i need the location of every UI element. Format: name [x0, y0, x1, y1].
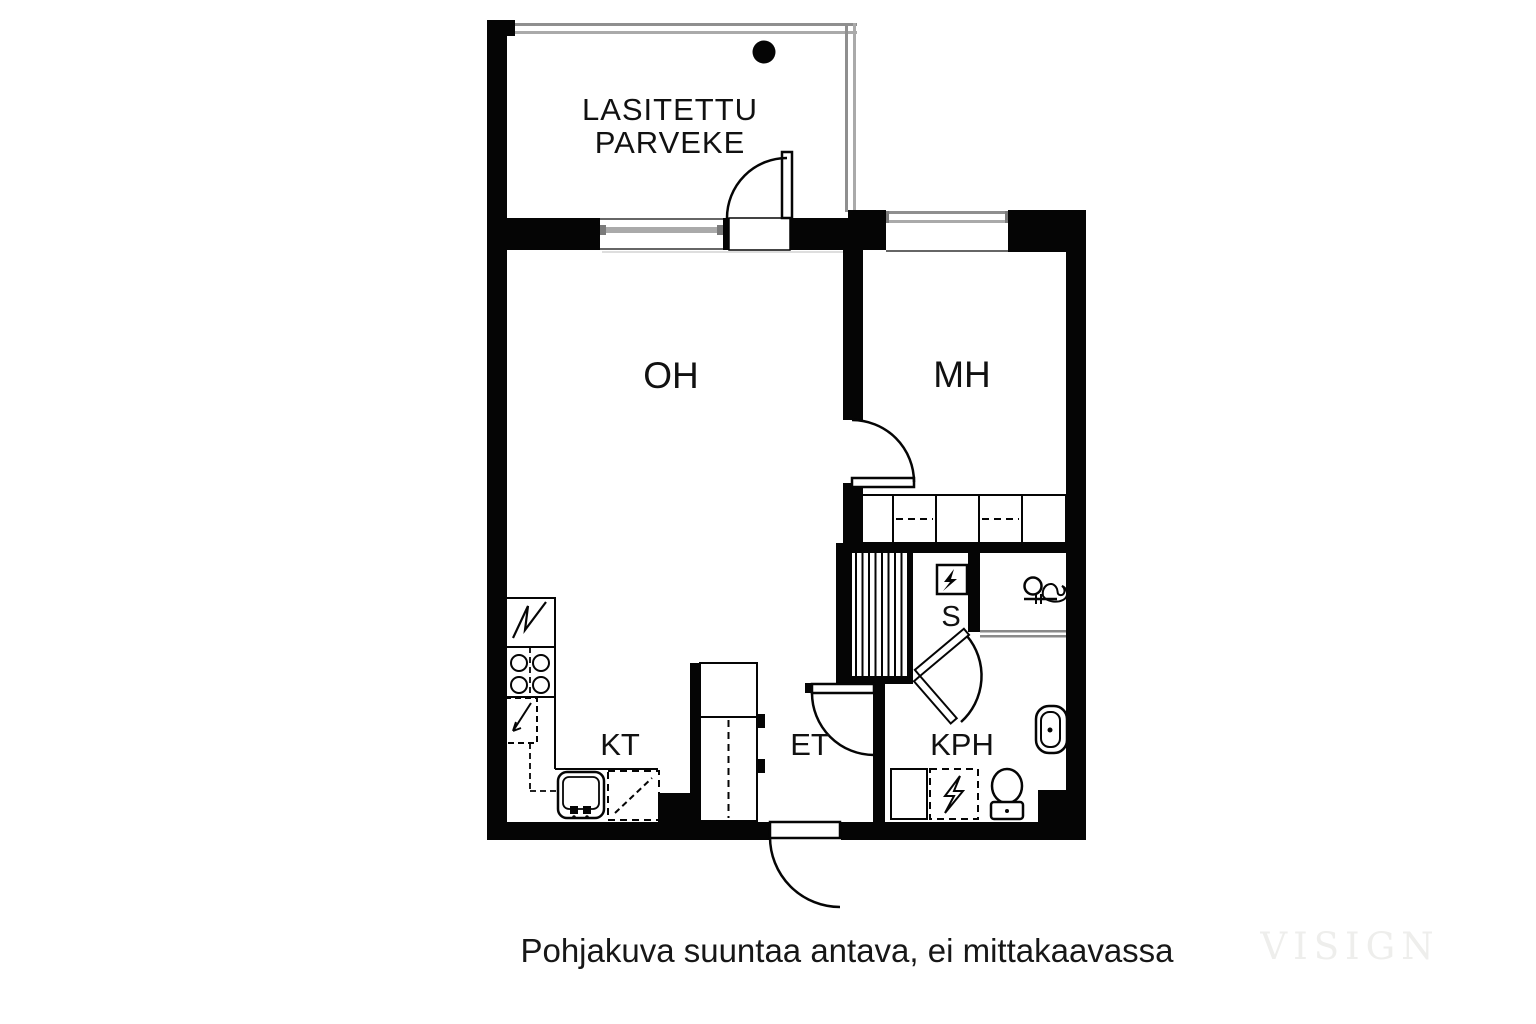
wall-left	[487, 218, 507, 840]
sauna-bench-slats	[856, 553, 913, 676]
window-bedroom	[886, 210, 1008, 252]
cabinet-right-tab-lower	[757, 759, 765, 773]
front-door-leaf	[770, 822, 840, 838]
room-label-bedroom: MH	[933, 354, 991, 395]
wall-balcony-left	[487, 20, 507, 220]
front-door-jamb-right	[841, 822, 848, 840]
wall-sauna-left	[836, 553, 852, 684]
fridge-icon	[505, 598, 555, 647]
washbasin	[1036, 706, 1067, 753]
room-label-bathroom: KPH	[930, 727, 994, 762]
wall-mh-sauna	[836, 543, 1086, 553]
exterior-walls	[487, 20, 1086, 840]
sauna-door-leaf-open	[915, 629, 969, 676]
window-sill-line	[602, 251, 845, 253]
balcony-label-line2: PARVEKE	[595, 125, 746, 160]
laundry-sink-icon	[1024, 578, 1067, 605]
wall-kph-corner-notch	[1038, 790, 1086, 840]
bedroom-door	[852, 420, 914, 487]
toilet	[991, 769, 1023, 819]
front-door	[770, 822, 840, 907]
kitchen-cabinet-reservation	[608, 771, 659, 820]
wall-top-b	[789, 218, 895, 250]
wall-bottom-left	[487, 822, 763, 840]
floorplan-page: LASITETTU PARVEKE OH MH KT ET KPH S Pohj…	[0, 0, 1536, 1024]
cabinet-right-tab-upper	[757, 714, 765, 728]
wall-top-a	[487, 218, 600, 250]
balcony-label-line1: LASITETTU	[582, 92, 758, 127]
wall-balcony-corner	[487, 20, 515, 36]
balcony-door-leaf	[782, 152, 792, 218]
wall-et-kph	[873, 684, 885, 822]
washing-machine-space	[891, 769, 927, 819]
room-label-living: OH	[643, 355, 699, 396]
sauna-door-leaf-closed	[914, 676, 957, 724]
disclaimer-caption: Pohjakuva suuntaa antava, ei mittakaavas…	[520, 932, 1174, 969]
visign-watermark: VISIGN	[1259, 925, 1439, 968]
room-label-entry: ET	[790, 727, 830, 762]
sauna-heater-icon	[937, 565, 967, 594]
bedroom-door-swing-arc	[852, 420, 914, 482]
dishwasher-reservation	[505, 698, 558, 791]
wall-right	[1066, 218, 1086, 840]
entry-inner-door-leaf	[812, 684, 874, 693]
bedroom-door-leaf	[852, 478, 914, 487]
sauna-door	[914, 629, 982, 724]
entry-cabinet	[700, 663, 757, 821]
wall-oh-mh-lower	[843, 483, 863, 545]
sauna-door-swing-arc	[961, 636, 982, 722]
balcony-door-swing-arc	[727, 158, 787, 218]
room-label-kitchen: KT	[600, 727, 640, 762]
dryer-reservation	[930, 769, 978, 819]
shower-partition	[980, 630, 1066, 638]
bedroom-wardrobes	[850, 495, 1066, 543]
floorplan-drawing: LASITETTU PARVEKE OH MH KT ET KPH S Pohj…	[0, 0, 1536, 1024]
front-door-swing-arc	[770, 837, 840, 907]
balcony-drain-dot	[753, 41, 776, 64]
stove-icon	[505, 647, 555, 697]
balcony-door	[727, 152, 792, 250]
wall-oh-mh-upper	[843, 250, 863, 420]
kitchen-sink	[558, 772, 604, 819]
kitchen-end-block	[658, 793, 700, 822]
window-living-room	[600, 218, 723, 250]
room-label-sauna: S	[941, 601, 960, 633]
wall-sauna-kph	[968, 543, 980, 632]
